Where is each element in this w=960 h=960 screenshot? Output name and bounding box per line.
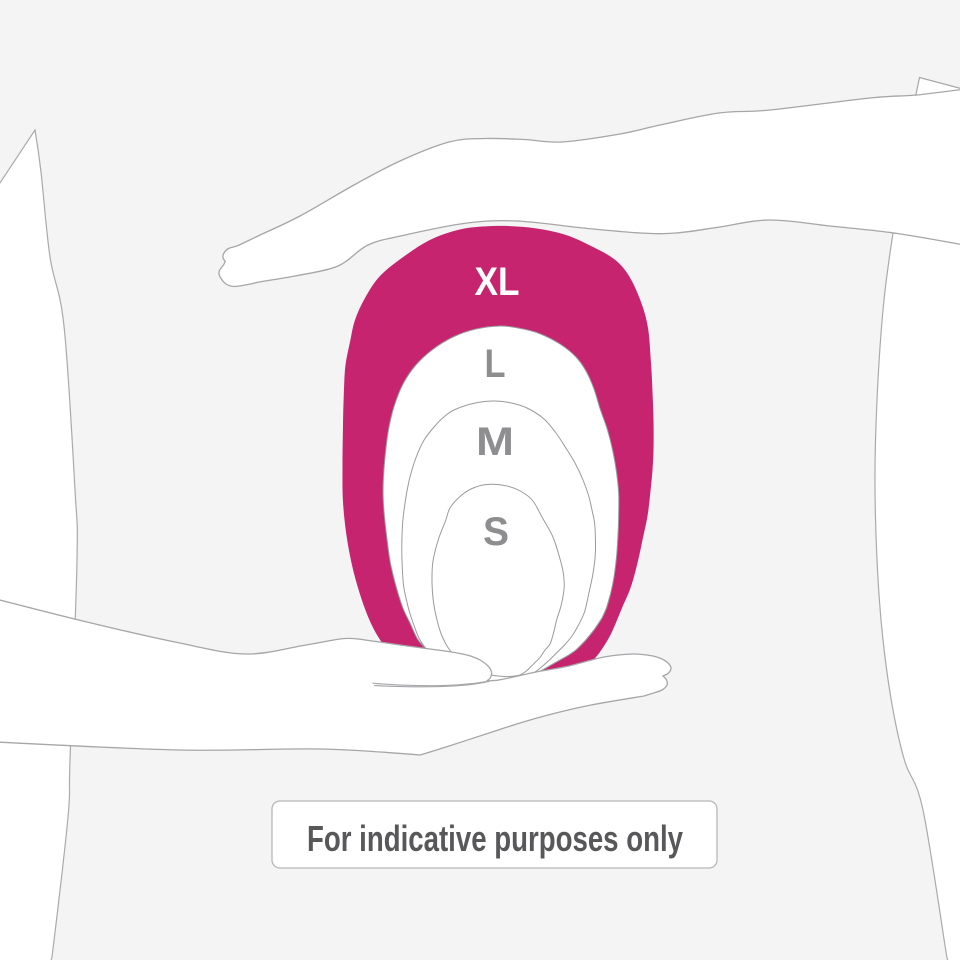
svg-text:S: S [483,510,509,554]
svg-text:M: M [476,420,514,464]
svg-text:L: L [485,342,506,386]
svg-text:XL: XL [475,260,520,304]
svg-text:For indicative purposes only: For indicative purposes only [307,818,683,859]
